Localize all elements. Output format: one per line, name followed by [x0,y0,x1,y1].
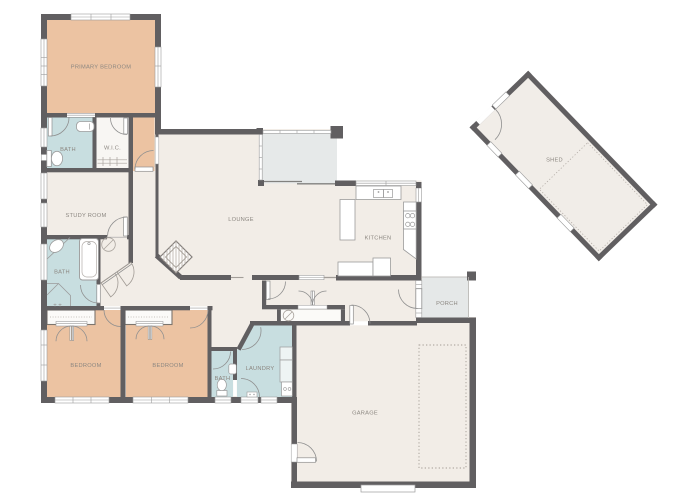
svg-text:BATH: BATH [215,376,231,382]
svg-text:LOUNGE: LOUNGE [228,217,254,223]
svg-text:PORCH: PORCH [436,301,458,307]
svg-text:W.I.C.: W.I.C. [104,146,121,152]
svg-text:LAUNDRY: LAUNDRY [246,366,275,372]
svg-text:KITCHEN: KITCHEN [365,236,392,242]
svg-text:BATH: BATH [54,270,70,276]
svg-text:BATH: BATH [60,147,76,153]
svg-text:SHED: SHED [546,158,563,164]
svg-text:PRIMARY BEDROOM: PRIMARY BEDROOM [71,65,131,71]
svg-text:GARAGE: GARAGE [352,411,378,417]
svg-text:STUDY ROOM: STUDY ROOM [66,213,107,219]
svg-text:BEDROOM: BEDROOM [70,363,101,369]
svg-text:BEDROOM: BEDROOM [152,363,183,369]
